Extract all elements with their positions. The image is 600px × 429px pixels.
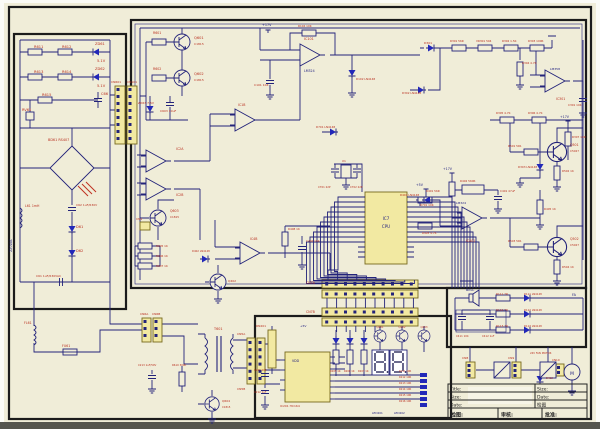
connector-pin xyxy=(144,334,147,337)
connector-pin xyxy=(117,88,120,91)
transistor-q402 xyxy=(210,274,226,290)
schematic-label: BELL xyxy=(466,288,474,292)
connector-pin xyxy=(129,137,132,140)
connector-pin xyxy=(335,321,338,324)
connector-pin xyxy=(117,137,120,140)
connector-pin xyxy=(400,283,403,286)
schematic-label: R104 10K xyxy=(298,24,312,28)
connector-pin xyxy=(372,321,375,324)
schematic-label: FU61 xyxy=(62,344,70,348)
schematic-label: CN1 xyxy=(136,217,142,221)
connector-pin xyxy=(325,311,328,314)
connector-pin xyxy=(335,311,338,314)
schematic-label: CN601 xyxy=(111,80,121,84)
schematic-label: 5.1V xyxy=(97,84,106,88)
schematic-label: R614 xyxy=(62,70,72,74)
smudge-overlay xyxy=(468,387,532,404)
schematic-label: M xyxy=(570,371,574,377)
schematic-label: C411 104 xyxy=(456,334,469,338)
connector-pin xyxy=(144,320,147,323)
schematic-label: R502 1K xyxy=(562,169,574,173)
schematic-label: R304 4.7K xyxy=(522,61,537,65)
connector-pin xyxy=(144,327,147,330)
schematic-label: D62 xyxy=(76,249,83,253)
schematic-label: R611 xyxy=(34,45,43,49)
connector-pin xyxy=(363,321,366,324)
title-label: Title: xyxy=(449,387,462,393)
schematic-label: Q202 xyxy=(399,325,406,329)
schematic-label: C1815 xyxy=(222,405,231,409)
schematic-label: CN5A xyxy=(237,332,246,336)
schematic-label: T601 xyxy=(213,327,223,331)
schematic-label: C702 22P xyxy=(350,185,363,189)
connector-pin xyxy=(129,130,132,133)
schematic-label: C402 104 xyxy=(306,239,320,243)
connector-pin xyxy=(468,369,471,372)
driver-q201 xyxy=(374,330,386,342)
connector-pin xyxy=(372,283,375,286)
schematic-label: IC101 xyxy=(304,37,314,41)
schematic-label: IC1B xyxy=(238,103,245,107)
date-right-label: Date: xyxy=(537,395,550,401)
schematic-label: R613 xyxy=(34,70,43,74)
schematic-label: R112 7R xyxy=(496,308,508,312)
connector-pin xyxy=(249,377,252,380)
connector-pin xyxy=(410,311,413,314)
connector-pin xyxy=(259,377,262,380)
connector-pin xyxy=(410,321,413,324)
connector-pin xyxy=(129,95,132,98)
schematic-label: C212 1uF xyxy=(254,390,267,394)
schematic-label: R211 10R xyxy=(399,369,411,373)
schematic-label: D102 LN4148 xyxy=(356,77,375,81)
resistor xyxy=(28,49,42,55)
schematic-label: R403 4.7K xyxy=(422,231,437,235)
schematic-label: CN7B xyxy=(306,310,315,314)
schematic-label: R501 5R1 xyxy=(508,144,522,148)
ribbon-pad xyxy=(420,391,427,395)
schematic-label: R607 1K xyxy=(156,264,168,268)
schematic-label: D113 LN4148 xyxy=(524,324,542,328)
transistor-q604 xyxy=(205,397,219,411)
schematic-label: LED202 xyxy=(394,411,405,415)
connector-pin xyxy=(468,364,471,367)
connector-pin xyxy=(129,123,132,126)
schematic-label: D302 LN4148 xyxy=(402,91,421,95)
schematic-label: D701 LN4148 xyxy=(316,125,335,129)
schematic-label: CN5B xyxy=(237,387,245,391)
schematic-label: Q601 xyxy=(194,36,204,40)
schematic-label: 24V FAN MOTOR xyxy=(530,351,552,355)
schematic-label: Q201 xyxy=(377,325,384,329)
schematic-label: C301 104 xyxy=(568,103,582,107)
schematic-label: R306 4.7K xyxy=(528,111,543,115)
connector-pin xyxy=(400,321,403,324)
schematic-label: LM358 xyxy=(550,67,560,71)
schematic-label: VR301 504 xyxy=(476,39,492,43)
schematic-label: CN8 xyxy=(462,356,468,360)
schematic-label: D61 xyxy=(76,225,83,229)
connector-pin xyxy=(249,370,252,373)
connector-pin xyxy=(129,109,132,112)
connector-pin xyxy=(249,348,252,351)
connector-pin xyxy=(353,283,356,286)
driver-q202 xyxy=(396,330,408,342)
connector-pin xyxy=(400,293,403,296)
bottom-bar xyxy=(0,422,600,429)
schematic-label: +5V xyxy=(300,324,307,328)
schematic-label: IC7 xyxy=(383,216,390,221)
schematic-label: ZD63 7.5V xyxy=(138,101,155,105)
schematic-label: Q604 xyxy=(222,399,230,403)
schematic-label: R612 xyxy=(62,45,71,49)
schematic-label: LM324 xyxy=(456,201,466,205)
schematic-label: D111 LN4148 xyxy=(524,292,542,296)
schematic-label: C62 1uF/630V xyxy=(76,203,98,207)
connector-pin xyxy=(372,293,375,296)
connector-pin xyxy=(557,366,560,369)
schematic-label: C603 10uF xyxy=(160,109,176,113)
schematic-label: C412 1uF xyxy=(482,334,495,338)
connector-pin xyxy=(363,293,366,296)
schematic-label: R408 1K xyxy=(288,227,300,231)
schematic-label: R215 10R xyxy=(399,393,411,397)
schematic-label: Q402 xyxy=(228,279,236,283)
schematic-label: 220VAC xyxy=(9,238,13,252)
connector-pin xyxy=(344,311,347,314)
connector-pin xyxy=(325,321,328,324)
schematic-label: R216 10R xyxy=(399,399,411,403)
power-transistor-q502 xyxy=(547,237,566,256)
connector-pin xyxy=(382,283,385,286)
schematic-label: D112 LN4148 xyxy=(524,308,542,312)
connector-pin xyxy=(353,321,356,324)
schematic-label: C66 xyxy=(101,92,109,96)
connector-pin xyxy=(514,374,517,377)
connector-pin xyxy=(557,371,560,374)
schematic-label: CN9 xyxy=(508,356,514,360)
check-right-label: 检图 xyxy=(537,402,547,409)
connector-pin xyxy=(363,311,366,314)
schematic-label: CN6A xyxy=(140,312,149,316)
schematic-label: R602 xyxy=(153,67,161,71)
schematic-label: ZD62 xyxy=(95,67,105,71)
schematic-label: CN6B xyxy=(152,312,160,316)
connector-pin xyxy=(410,293,413,296)
schematic-label: +17V xyxy=(443,167,453,171)
schematic-label: C211 104 xyxy=(254,368,267,372)
schematic-label: IC401 xyxy=(466,239,475,243)
connector-pin xyxy=(391,321,394,324)
schematic-label: R405 1K xyxy=(544,207,556,211)
schematic-canvas: R611R612ZD615.1VR613R614ZD625.1VR615C66R… xyxy=(0,0,600,429)
connector-pin xyxy=(344,283,347,286)
schematic-label: D301 xyxy=(424,41,432,45)
ribbon-pad xyxy=(420,397,427,401)
schematic-label: RN201 xyxy=(256,324,266,328)
connector-pin xyxy=(468,374,471,377)
schematic-label: R601 xyxy=(153,31,161,35)
schematic-label: Q501 xyxy=(570,143,579,147)
connector-cn10 xyxy=(556,364,564,376)
connector-pin xyxy=(391,293,394,296)
schematic-label: IC201 HC164 xyxy=(280,404,300,408)
schematic-label: ZD61 xyxy=(95,42,105,46)
check-label: 检图: xyxy=(451,412,463,419)
schematic-label: C213 1uF/50V xyxy=(138,363,157,367)
schematic-label: R205 1K xyxy=(330,369,341,373)
sip-resistor-network xyxy=(268,330,276,368)
schematic-label: VDD xyxy=(292,359,300,363)
connector-pin xyxy=(335,293,338,296)
schematic-label: R206 1K xyxy=(344,369,355,373)
schematic-label: C5027 xyxy=(570,243,579,247)
schematic-label: C1815 xyxy=(170,215,179,219)
connector-pin xyxy=(382,311,385,314)
size-label: Size: xyxy=(450,395,461,401)
schematic-label: R606 1K xyxy=(156,254,168,258)
schematic-label: Q602 xyxy=(194,72,204,76)
schematic-label: R307 10R xyxy=(572,135,586,139)
schematic-label: LED201 xyxy=(372,411,383,415)
connector-pin xyxy=(117,102,120,105)
schematic-label: C401 47uF xyxy=(500,189,516,193)
schematic-label: C101 104 xyxy=(254,83,269,87)
schematic-label: IC301 xyxy=(556,97,565,101)
transistor-q603 xyxy=(150,210,166,226)
ribbon-pad xyxy=(420,379,427,383)
connector-pin xyxy=(129,88,132,91)
crystal xyxy=(341,165,351,178)
schematic-label: FL61 xyxy=(24,321,32,325)
connector-pin xyxy=(129,102,132,105)
schematic-label: R111 7R xyxy=(496,292,508,296)
schematic-label: C5027 xyxy=(570,149,579,153)
connector-pin xyxy=(344,321,347,324)
schematic-label: IC2B xyxy=(176,193,183,197)
schematic-label: +5V xyxy=(416,183,424,187)
approve-label: 批准: xyxy=(545,412,557,419)
date-label: Date: xyxy=(450,403,463,409)
schematic-label: R605 1K xyxy=(156,244,168,248)
schematic-label: CPU xyxy=(382,224,390,229)
connector-pin xyxy=(249,341,252,344)
schematic-label: R401 56R xyxy=(426,189,440,193)
schematic-label: R504 1K xyxy=(562,265,574,269)
connector-pin xyxy=(117,123,120,126)
connector-pin xyxy=(325,283,328,286)
connector-pin xyxy=(249,363,252,366)
connector-pin xyxy=(410,283,413,286)
schematic-label: CN10 xyxy=(552,358,560,362)
schematic-label: X1 xyxy=(342,159,346,163)
schematic-label: R113 7R xyxy=(496,324,508,328)
connector-pin xyxy=(514,369,517,372)
schematic-label: R610 300K xyxy=(172,363,187,367)
schematic-label: D401 LN4148 xyxy=(400,193,419,197)
connector-pin xyxy=(249,355,252,358)
schematic-label: BD61 RS407 xyxy=(48,138,69,142)
ribbon-pad xyxy=(420,373,427,377)
schematic-label: +17V xyxy=(560,115,570,119)
schematic-label: R701 10K xyxy=(420,203,434,207)
schematic-label: D303 LN4148 xyxy=(518,165,537,169)
connector-pin xyxy=(155,320,158,323)
schematic-label: R402 560R xyxy=(460,179,476,183)
ribbon-pad xyxy=(420,385,427,389)
connector-pin xyxy=(353,311,356,314)
connector-pin xyxy=(117,109,120,112)
connector-pin xyxy=(117,95,120,98)
schematic-label: Q502 xyxy=(570,237,579,241)
schematic-label: +17V xyxy=(262,23,272,27)
connector-pin xyxy=(382,293,385,296)
connector-pin xyxy=(335,283,338,286)
connector-pin xyxy=(400,311,403,314)
connector-pin xyxy=(259,355,262,358)
connector-pin xyxy=(259,363,262,366)
schematic-label: IC2A xyxy=(176,147,184,151)
schematic-label: FA xyxy=(572,293,577,297)
schematic-label: 5.1V xyxy=(97,59,106,63)
power-transistor-q501 xyxy=(547,142,566,161)
driver-q203 xyxy=(418,330,430,342)
schematic-label: D402 LN4148 xyxy=(192,249,210,253)
connector-pin xyxy=(353,293,356,296)
schematic-label: R302 1.5K xyxy=(502,39,517,43)
schematic-label: Q603 xyxy=(170,209,179,213)
schematic-label: L61 1mH xyxy=(25,204,40,208)
connector-pin xyxy=(155,327,158,330)
connector-pin xyxy=(372,311,375,314)
ribbon-pad xyxy=(420,403,427,407)
review-label: 审核: xyxy=(501,412,513,419)
transistor-q601 xyxy=(174,34,190,50)
fuse xyxy=(63,349,77,355)
connector-pin xyxy=(344,293,347,296)
connector-pin xyxy=(155,334,158,337)
varistor xyxy=(26,112,34,120)
schematic-label: Q203 xyxy=(421,325,428,329)
connector-pin xyxy=(382,321,385,324)
schematic-label: R207 1K xyxy=(358,369,369,373)
connector-pin xyxy=(117,130,120,133)
schematic-label: R301 56R xyxy=(450,39,464,43)
schematic-label: RV61 xyxy=(22,108,31,112)
connector-cn101 xyxy=(127,86,137,144)
schematic-label: R503 5R1 xyxy=(508,239,522,243)
schematic-label: D412 xyxy=(546,376,553,380)
connector-cn1 xyxy=(140,222,150,230)
schematic-label: IC4B xyxy=(250,237,257,241)
schematic-label: LM324 xyxy=(304,69,315,73)
schematic-label: R214 10R xyxy=(399,387,411,391)
schematic-label: R213 10R xyxy=(399,381,411,385)
connector-pin xyxy=(391,311,394,314)
connector-pin xyxy=(259,348,262,351)
schematic-label: R212 10R xyxy=(399,375,411,379)
connector-cn601 xyxy=(115,86,125,144)
transistor-q602 xyxy=(174,70,190,86)
connector-pin xyxy=(259,341,262,344)
schematic-label: CN7A xyxy=(306,281,316,285)
schematic-label: C61 1uF/630VAC xyxy=(36,274,61,278)
connector-pin xyxy=(117,116,120,119)
schematic-label: R305 4.7K xyxy=(496,111,511,115)
schematic-label: R303 100R xyxy=(528,39,544,43)
schematic-label: C701 22P xyxy=(318,185,331,189)
schematic-label: C1815 xyxy=(194,78,204,82)
connector-pin xyxy=(514,364,517,367)
connector-pin xyxy=(363,283,366,286)
connector-pin xyxy=(129,116,132,119)
schematic-label: CN101 xyxy=(127,80,137,84)
schematic-label: R615 xyxy=(42,93,51,97)
connector-pin xyxy=(325,293,328,296)
size-right-label: Size: xyxy=(537,387,548,393)
connector-pin xyxy=(391,283,394,286)
schematic-label: C1815 xyxy=(194,42,204,46)
